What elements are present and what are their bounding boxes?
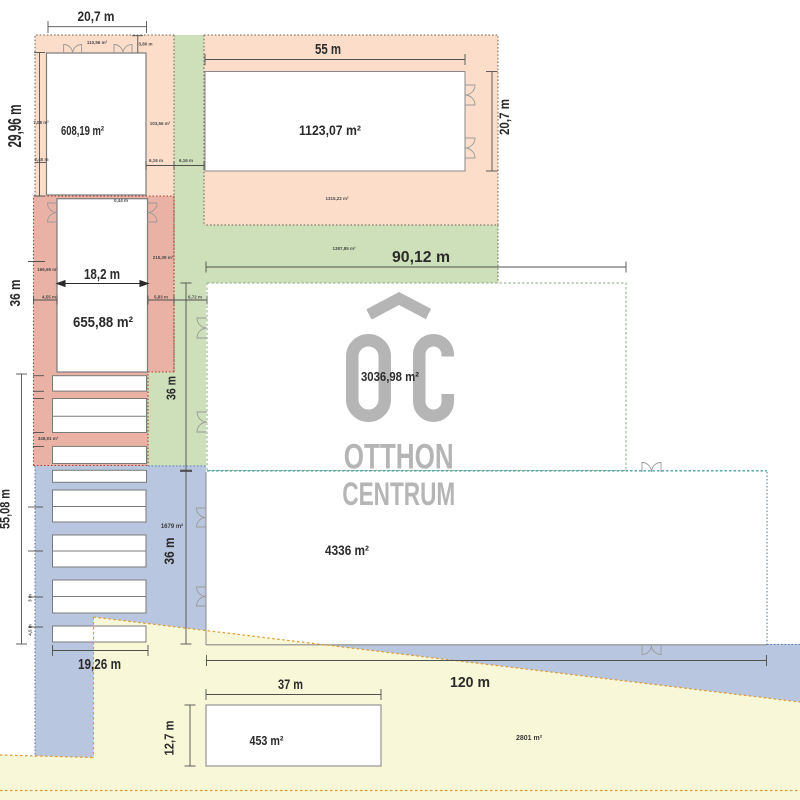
svg-text:36 m: 36 m (7, 280, 24, 307)
svg-text:4,55 m: 4,55 m (42, 295, 56, 300)
svg-text:1387,85 m²: 1387,85 m² (332, 246, 356, 251)
svg-text:5,83 m: 5,83 m (154, 295, 168, 300)
svg-text:1679 m²: 1679 m² (161, 523, 183, 530)
svg-text:166,69 m²: 166,69 m² (37, 267, 58, 272)
svg-text:20,7 m: 20,7 m (496, 99, 512, 135)
svg-text:6,72 m: 6,72 m (188, 295, 202, 300)
svg-text:7,08 m²: 7,08 m² (33, 120, 49, 125)
svg-text:29,96 m: 29,96 m (5, 105, 25, 148)
svg-text:18,2 m: 18,2 m (84, 266, 120, 283)
svg-text:36 m: 36 m (164, 376, 179, 400)
svg-text:215,39 m²: 215,39 m² (153, 255, 174, 260)
svg-text:3036,98 m²: 3036,98 m² (361, 369, 420, 384)
svg-text:OTTHON: OTTHON (344, 438, 454, 477)
svg-text:6,16 m: 6,16 m (179, 158, 193, 163)
svg-text:37 m: 37 m (278, 676, 303, 692)
svg-text:6,16 m: 6,16 m (149, 158, 163, 163)
svg-text:CENTRUM: CENTRUM (342, 476, 455, 512)
svg-text:1315,22 m²: 1315,22 m² (325, 196, 349, 201)
svg-text:20,7 m: 20,7 m (78, 8, 115, 24)
svg-text:110,56 m²: 110,56 m² (87, 40, 108, 45)
svg-text:90,12 m: 90,12 m (392, 249, 450, 266)
svg-text:4,5 m: 4,5 m (28, 624, 33, 636)
svg-text:3,80 m: 3,80 m (138, 42, 152, 47)
svg-text:103,56 m²: 103,56 m² (150, 121, 171, 126)
svg-text:655,88 m²: 655,88 m² (73, 314, 133, 331)
svg-text:4336 m²: 4336 m² (325, 542, 369, 558)
svg-text:453 m²: 453 m² (250, 734, 284, 748)
svg-text:608,19 m²: 608,19 m² (61, 123, 104, 138)
svg-text:0,44 m: 0,44 m (114, 198, 128, 203)
svg-text:12,7 m: 12,7 m (162, 721, 177, 756)
svg-text:2801 m²: 2801 m² (516, 735, 543, 742)
svg-text:55,08 m: 55,08 m (0, 489, 13, 529)
svg-text:2,40 m: 2,40 m (34, 157, 48, 162)
svg-text:36 m: 36 m (161, 538, 177, 565)
svg-text:1123,07 m²: 1123,07 m² (299, 122, 361, 138)
svg-text:348,91 m²: 348,91 m² (38, 436, 59, 441)
svg-text:120 m: 120 m (450, 674, 490, 691)
svg-text:3 m: 3 m (28, 594, 33, 602)
svg-text:19,26 m: 19,26 m (78, 656, 121, 673)
svg-text:55 m: 55 m (315, 41, 341, 58)
